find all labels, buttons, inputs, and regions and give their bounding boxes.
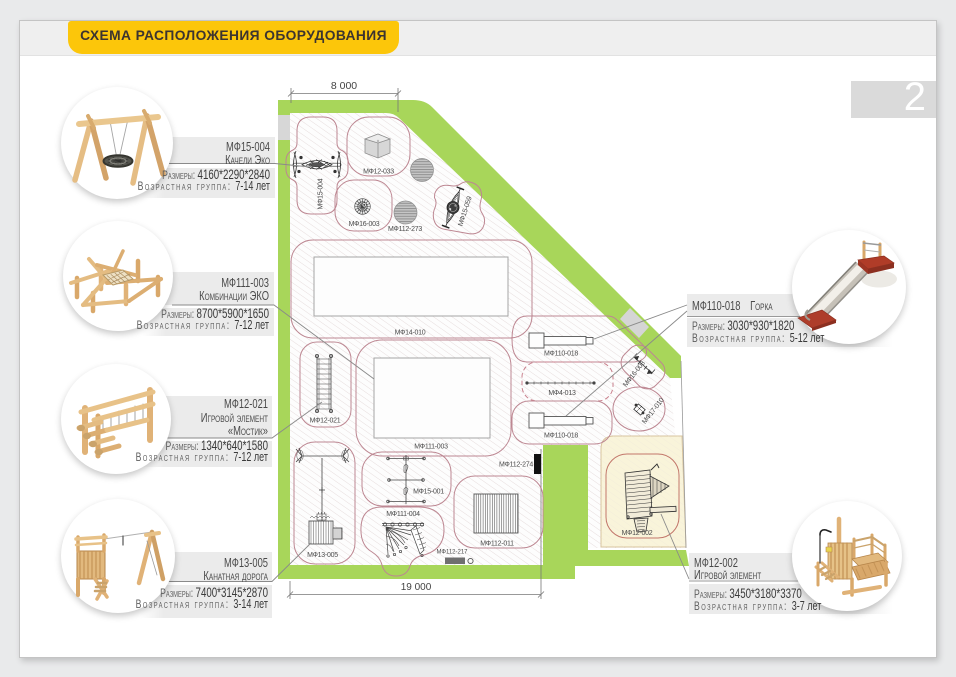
svg-text:МФ15-001: МФ15-001 [413,489,444,496]
svg-text:МФ4-013: МФ4-013 [548,390,576,397]
svg-text:МФ112-011: МФ112-011 [480,541,514,548]
svg-text:МФ111-004: МФ111-004 [386,511,420,518]
svg-text:МФ110-018: МФ110-018 [544,433,578,440]
svg-text:МФ112-273: МФ112-273 [388,226,422,233]
svg-text:МФ15-004: МФ15-004 [318,178,325,209]
svg-text:МФ110-018: МФ110-018 [544,351,578,358]
svg-text:8 000: 8 000 [331,80,357,92]
svg-text:МФ112-274: МФ112-274 [499,462,533,469]
svg-text:МФ112-217: МФ112-217 [436,550,468,556]
svg-text:МФ111-003: МФ111-003 [414,444,448,451]
svg-text:МФ12-033: МФ12-033 [363,169,394,176]
svg-text:МФ14-010: МФ14-010 [395,330,426,337]
svg-text:МФ12-002: МФ12-002 [622,530,653,537]
svg-text:19 000: 19 000 [401,582,432,593]
svg-text:МФ12-021: МФ12-021 [310,418,341,425]
svg-text:МФ13-005: МФ13-005 [307,552,338,559]
svg-text:МФ16-003: МФ16-003 [349,221,380,228]
